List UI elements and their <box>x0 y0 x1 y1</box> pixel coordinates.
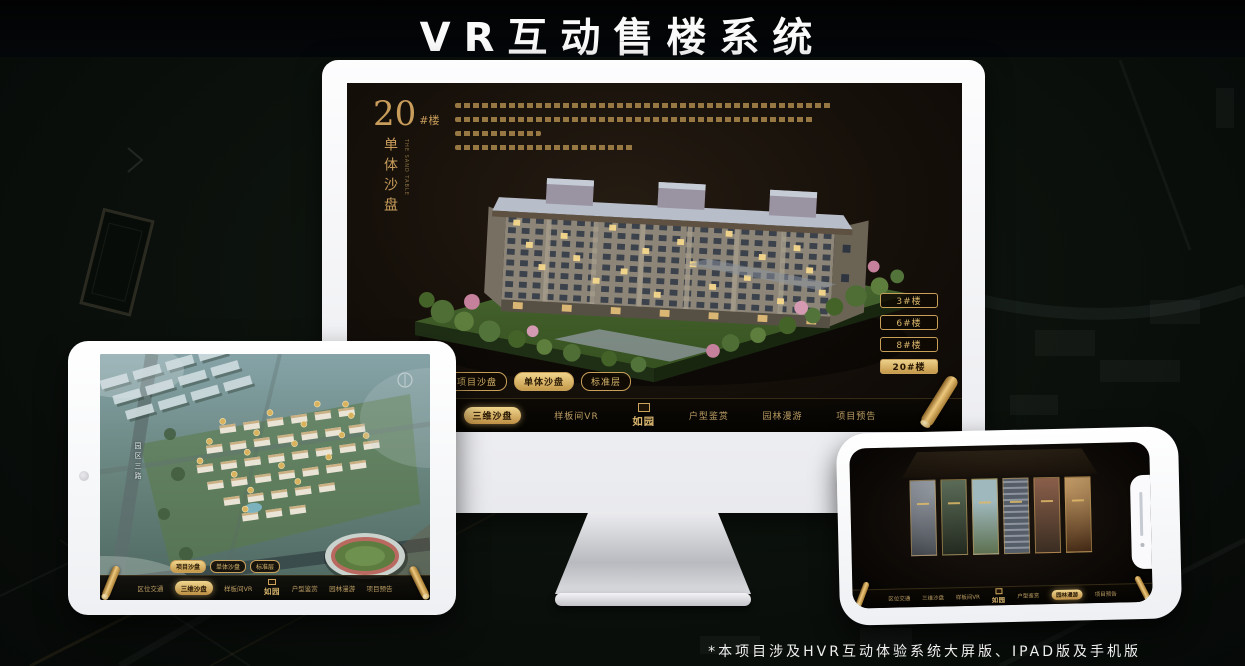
page-title: VR互动售楼系统 <box>0 5 1245 63</box>
nav-item-floorplan-gallery[interactable]: 户型鉴赏 <box>292 583 318 593</box>
tab-project-sandbox[interactable]: 项目沙盘 <box>170 560 206 573</box>
tab-single-building-sandbox[interactable]: 单体沙盘 <box>514 372 574 391</box>
building-number-unit: #楼 <box>419 112 439 128</box>
building-number: 20 <box>373 97 416 131</box>
nav-item-3d-sandbox[interactable]: 三维沙盘 <box>175 581 213 594</box>
phone-camera-icon <box>1140 543 1144 547</box>
nav-item-3d-sandbox[interactable]: 三维沙盘 <box>922 593 944 601</box>
nav-item-garden-tour[interactable]: 园林漫游 <box>763 409 803 422</box>
logo-seal-icon <box>268 579 276 586</box>
tablet-navbar: 区位交通 三维沙盘 样板间VR 如园 户型鉴赏 园林漫游 项目预告 <box>100 575 430 600</box>
nav-item-3d-sandbox[interactable]: 三维沙盘 <box>464 407 520 425</box>
logo-seal-icon <box>638 403 650 412</box>
tab-single-building-sandbox[interactable]: 单体沙盘 <box>210 560 246 573</box>
tablet-camera-icon <box>79 471 89 481</box>
phone-speaker-icon <box>1139 492 1143 536</box>
monitor-stand-neck <box>555 512 751 594</box>
nav-item-garden-tour[interactable]: 园林漫游 <box>1051 589 1083 600</box>
brand-logo-label: 如园 <box>632 413 655 428</box>
floor-button-20[interactable]: 20#楼 <box>880 359 938 374</box>
tablet-device: 园区三路 项目沙盘 单体沙盘 标准层 区位交通 三维沙盘 样板间VR 如园 户型… <box>68 341 456 615</box>
phone-notch <box>1130 475 1153 569</box>
nav-item-showroom-vr[interactable]: 样板间VR <box>956 593 980 602</box>
nav-item-floorplan-gallery[interactable]: 户型鉴赏 <box>689 409 729 422</box>
floor-button-3[interactable]: 3#楼 <box>880 293 938 308</box>
poster: VR互动售楼系统 20 #楼 单体沙盘 THE SAND TABLE <box>0 0 1245 666</box>
phone-device: 区位交通 三维沙盘 样板间VR 如园 户型鉴赏 园林漫游 项目预告 <box>836 426 1182 626</box>
nav-item-location-traffic[interactable]: 区位交通 <box>137 583 163 593</box>
floor-button-group: 3#楼 6#楼 8#楼 20#楼 <box>880 293 938 374</box>
nav-item-project-preview[interactable]: 项目预告 <box>367 583 393 593</box>
tab-standard-floor[interactable]: 标准层 <box>250 560 280 573</box>
floor-button-6[interactable]: 6#楼 <box>880 315 938 330</box>
nav-item-location-traffic[interactable]: 区位交通 <box>888 594 910 602</box>
brand-logo[interactable]: 如园 <box>992 588 1006 604</box>
brand-logo[interactable]: 如园 <box>632 403 655 428</box>
tab-project-sandbox[interactable]: 项目沙盘 <box>447 372 507 391</box>
tablet-screen: 园区三路 项目沙盘 单体沙盘 标准层 区位交通 三维沙盘 样板间VR 如园 户型… <box>100 354 430 600</box>
logo-seal-icon <box>995 588 1002 594</box>
phone-screen: 区位交通 三维沙盘 样板间VR 如园 户型鉴赏 园林漫游 项目预告 <box>849 442 1153 609</box>
brand-logo[interactable]: 如园 <box>264 579 280 598</box>
nav-item-showroom-vr[interactable]: 样板间VR <box>224 583 252 593</box>
framed-plaque <box>81 210 153 315</box>
road-label: 园区三路 <box>133 442 143 482</box>
floor-button-8[interactable]: 8#楼 <box>880 337 938 352</box>
brand-logo-label: 如园 <box>992 595 1006 604</box>
nav-item-floorplan-gallery[interactable]: 户型鉴赏 <box>1017 591 1039 599</box>
brand-logo-label: 如园 <box>264 586 280 597</box>
nav-item-project-preview[interactable]: 项目预告 <box>836 409 876 422</box>
nav-item-garden-tour[interactable]: 园林漫游 <box>329 583 355 593</box>
nav-item-showroom-vr[interactable]: 样板间VR <box>554 409 598 422</box>
building-block <box>483 173 870 330</box>
section-title-vertical: 单体沙盘 <box>380 137 400 217</box>
tab-standard-floor[interactable]: 标准层 <box>581 372 631 391</box>
nav-item-project-preview[interactable]: 项目预告 <box>1095 590 1117 598</box>
sandbox-tabs: 项目沙盘 单体沙盘 标准层 <box>447 372 631 391</box>
footnote: *本项目涉及HVR互动体验系统大屏版、IPAD版及手机版 <box>708 641 1141 661</box>
tablet-sandbox-tabs: 项目沙盘 单体沙盘 标准层 <box>170 560 280 573</box>
monitor-stand-base <box>555 593 751 606</box>
building-model-illustration <box>402 147 922 392</box>
